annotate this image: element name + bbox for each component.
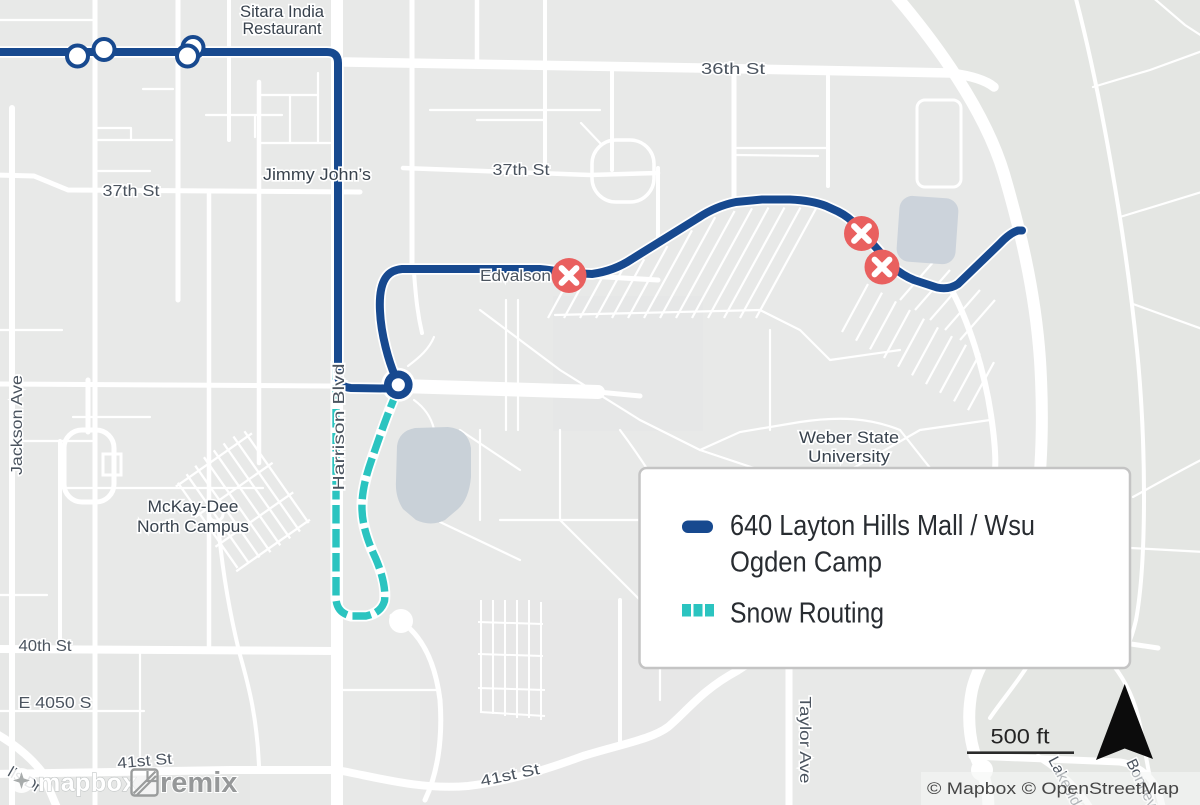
svg-text:Jackson Ave: Jackson Ave (9, 375, 26, 475)
svg-text:Jimmy John’s: Jimmy John’s (263, 165, 371, 184)
svg-text:University: University (808, 447, 891, 466)
svg-text:500 ft: 500 ft (991, 725, 1050, 749)
svg-text:Restaurant: Restaurant (243, 19, 322, 38)
svg-text:Ogden Camp: Ogden Camp (730, 547, 882, 579)
svg-text:Harrison Blvd: Harrison Blvd (331, 364, 348, 491)
svg-text:Snow Routing: Snow Routing (730, 598, 884, 630)
svg-text:E 4050 S: E 4050 S (19, 695, 92, 712)
svg-text:40th St: 40th St (19, 638, 73, 655)
svg-text:remix: remix (160, 767, 237, 799)
svg-text:37th St: 37th St (103, 183, 161, 200)
svg-text:North Campus: North Campus (137, 517, 249, 536)
svg-text:© Mapbox © OpenStreetMap: © Mapbox © OpenStreetMap (927, 779, 1179, 798)
svg-text:Weber State: Weber State (799, 428, 899, 447)
svg-text:37th St: 37th St (493, 162, 551, 179)
svg-text:mapbox: mapbox (38, 769, 137, 797)
svg-text:640 Layton Hills Mall / Wsu: 640 Layton Hills Mall / Wsu (730, 510, 1035, 542)
svg-text:McKay-Dee: McKay-Dee (148, 497, 239, 516)
svg-text:36th St: 36th St (701, 61, 766, 78)
svg-text:Taylor Ave: Taylor Ave (796, 697, 813, 784)
